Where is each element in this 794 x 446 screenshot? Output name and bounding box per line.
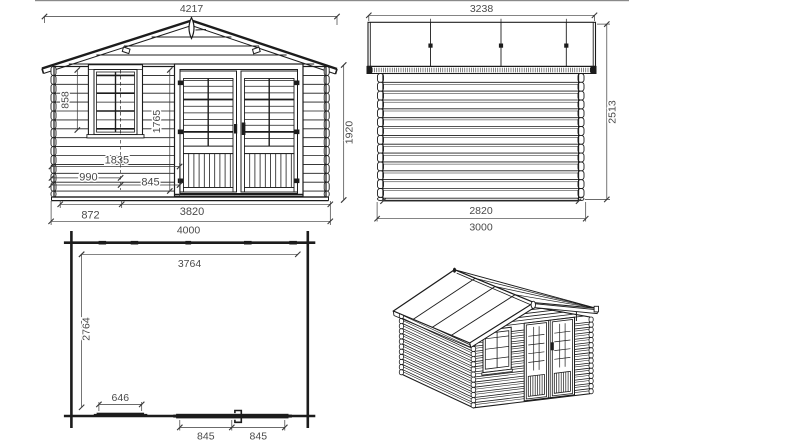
svg-text:3238: 3238 [470, 3, 494, 15]
svg-text:3764: 3764 [178, 258, 202, 270]
svg-text:3820: 3820 [180, 206, 204, 218]
svg-text:872: 872 [81, 210, 99, 222]
svg-text:1920: 1920 [344, 121, 356, 145]
svg-text:990: 990 [79, 172, 97, 184]
svg-text:845: 845 [141, 176, 159, 188]
svg-text:1835: 1835 [105, 154, 129, 166]
svg-text:1765: 1765 [151, 110, 163, 134]
svg-text:2820: 2820 [469, 205, 493, 217]
svg-text:845: 845 [197, 431, 215, 443]
svg-text:845: 845 [250, 431, 268, 443]
svg-text:3000: 3000 [469, 222, 493, 234]
svg-text:646: 646 [112, 392, 130, 404]
svg-text:858: 858 [60, 91, 72, 109]
svg-text:4000: 4000 [177, 225, 201, 237]
svg-text:2513: 2513 [607, 100, 619, 124]
svg-text:2764: 2764 [81, 317, 93, 341]
svg-text:4217: 4217 [180, 3, 204, 15]
